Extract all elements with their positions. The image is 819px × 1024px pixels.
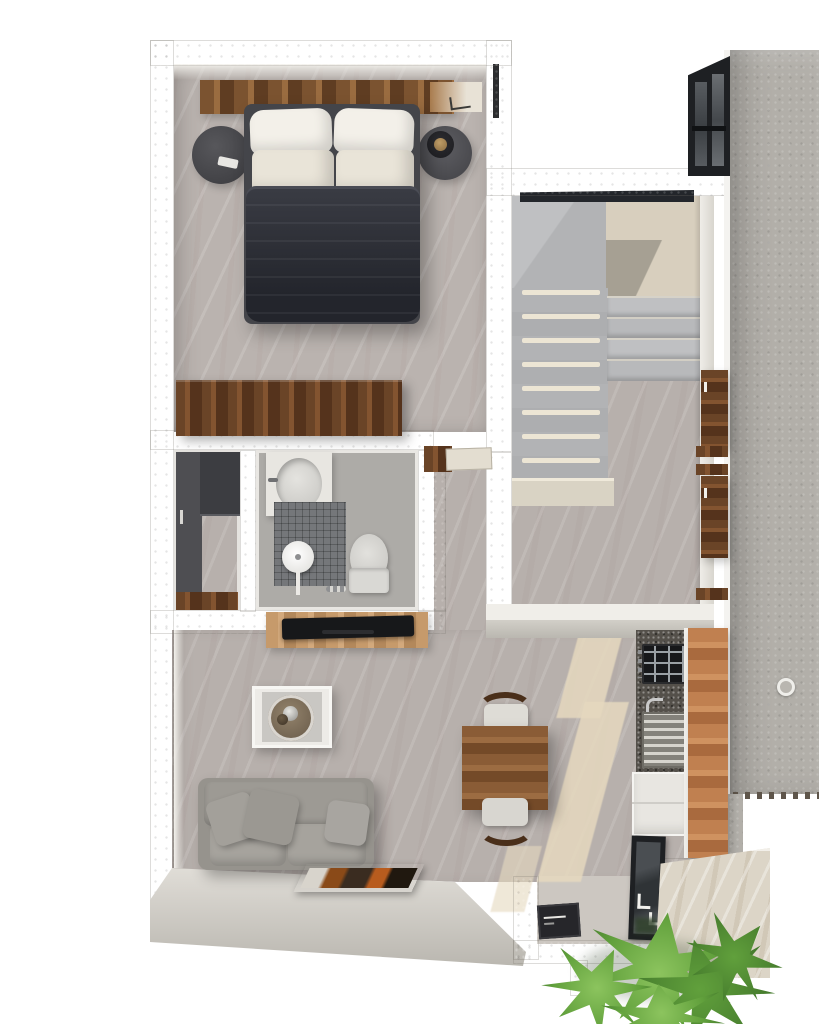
bedroom-right-wall — [486, 40, 512, 452]
cooktop-knobs — [638, 650, 642, 678]
desk-lamp-sketch — [449, 95, 471, 111]
stair-step — [512, 456, 608, 478]
stair-step — [512, 288, 608, 312]
bedroom-dresser — [176, 380, 402, 436]
black-corner-window — [688, 56, 730, 176]
framed-artwork — [293, 864, 424, 892]
step-nosing — [522, 458, 600, 463]
sink-drainboard — [642, 712, 688, 768]
stair-step-wide — [607, 296, 702, 317]
window-mullion — [692, 126, 726, 131]
floor-plan-render — [0, 0, 819, 1024]
door-plant-reflection — [634, 918, 657, 935]
cabinet-handle — [704, 488, 707, 498]
shower-arm — [296, 571, 300, 595]
table-lamp-shade — [434, 138, 447, 151]
stair-step-wide — [607, 338, 702, 359]
step-nosing — [522, 290, 600, 295]
stair-step — [512, 312, 608, 336]
toilet-tank — [349, 568, 389, 593]
bed-pillow-back-right — [333, 108, 415, 156]
stair-step — [512, 384, 608, 408]
stair-upper-left-winder — [512, 196, 608, 292]
concrete-slab — [730, 50, 819, 794]
tall-wood-cabinet — [688, 628, 728, 858]
mat-line — [544, 922, 554, 925]
stair-step — [512, 360, 608, 384]
kitchen-base-cabinets — [632, 772, 690, 836]
flat-tv — [282, 615, 415, 639]
stair-step-wide — [607, 317, 702, 338]
vanity-faucet — [268, 478, 278, 482]
bed-duvet — [246, 186, 420, 322]
stair-step — [512, 336, 608, 360]
gas-cooktop — [642, 644, 688, 684]
stair-step — [512, 432, 608, 456]
sofa-throw-pillow — [323, 799, 370, 846]
window-glass-pane — [695, 82, 707, 166]
shower-tile-floor — [274, 502, 346, 586]
closet-bath-wall — [240, 450, 256, 612]
bedroom-door-leaf — [446, 447, 493, 471]
shower-head-center — [295, 554, 301, 560]
step-nosing — [522, 338, 600, 343]
step-nosing — [522, 314, 600, 319]
left-outer-wall — [150, 40, 174, 938]
floor-drain — [777, 678, 795, 696]
stair-bottom-lit-step — [512, 478, 614, 506]
cabinet-handle — [704, 382, 707, 392]
cabinet-panel-line — [632, 802, 690, 804]
nightstand-left — [192, 126, 250, 184]
mat-line — [544, 916, 566, 920]
step-nosing — [522, 434, 600, 439]
wardrobe-upper-unit — [200, 452, 240, 516]
stair-step-wide — [607, 359, 702, 381]
bath-fixture-chrome — [326, 586, 346, 592]
living-left-wall-innerface — [174, 630, 184, 868]
step-nosing — [522, 386, 600, 391]
stair-step — [512, 408, 608, 432]
door-handle — [637, 894, 651, 909]
stair-wall-shelf-bar — [696, 446, 728, 457]
tray-decor-small — [277, 714, 288, 725]
dining-chair-south-back — [478, 812, 534, 846]
stair-landing-shadow — [606, 240, 702, 298]
closet-wood-threshold — [176, 592, 238, 610]
bedroom-top-wall-innerface — [174, 64, 486, 80]
tv-stand-mark — [322, 630, 374, 634]
slab-sawtooth-edge — [733, 792, 819, 799]
stair-wall-shelf-bar — [696, 464, 728, 475]
stair-wall-shelf-bar — [696, 588, 728, 600]
step-nosing — [522, 410, 600, 415]
wardrobe-side-panel — [176, 452, 202, 598]
entry-door-mat — [537, 903, 581, 940]
bathroom-right-wall — [418, 450, 446, 612]
window-glass-pane — [712, 74, 724, 166]
bed-pillow-back-left — [249, 108, 333, 156]
slab-lower-strip — [727, 794, 743, 862]
step-nosing — [522, 362, 600, 367]
artwork-canvas — [300, 868, 417, 888]
sofa-throw-pillow — [241, 787, 300, 846]
bedroom-top-wall — [150, 40, 512, 66]
wardrobe-handle — [180, 510, 183, 524]
